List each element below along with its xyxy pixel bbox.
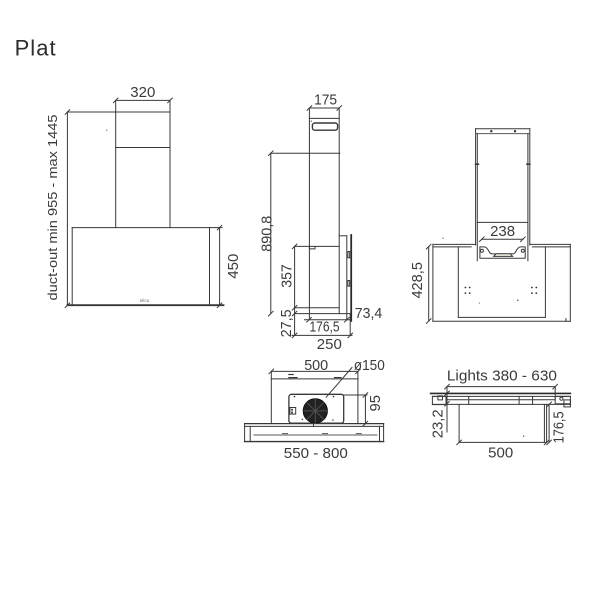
svg-text:890,8: 890,8: [260, 216, 276, 252]
svg-text:428,5: 428,5: [410, 262, 426, 299]
svg-text:23,2: 23,2: [431, 409, 447, 438]
svg-text:ø150: ø150: [354, 358, 385, 374]
svg-text:450: 450: [226, 254, 242, 279]
svg-text:elica: elica: [140, 298, 150, 303]
svg-text:250: 250: [317, 337, 342, 353]
svg-text:95: 95: [368, 395, 384, 412]
svg-text:176,5: 176,5: [551, 411, 567, 443]
svg-text:73,4: 73,4: [355, 306, 383, 322]
svg-text:357: 357: [280, 264, 296, 288]
svg-text:500: 500: [488, 446, 513, 462]
svg-text:176,5: 176,5: [310, 320, 340, 336]
svg-text:238: 238: [490, 224, 515, 240]
svg-text:175: 175: [314, 93, 337, 109]
svg-text:320: 320: [130, 85, 155, 101]
svg-text:Lights 380 - 630: Lights 380 - 630: [447, 367, 557, 384]
svg-text:duct-out min 955 - max 1445: duct-out min 955 - max 1445: [45, 115, 60, 301]
svg-text:550 - 800: 550 - 800: [284, 445, 348, 462]
svg-text:Plat: Plat: [15, 35, 56, 60]
svg-text:27,5: 27,5: [279, 309, 295, 337]
